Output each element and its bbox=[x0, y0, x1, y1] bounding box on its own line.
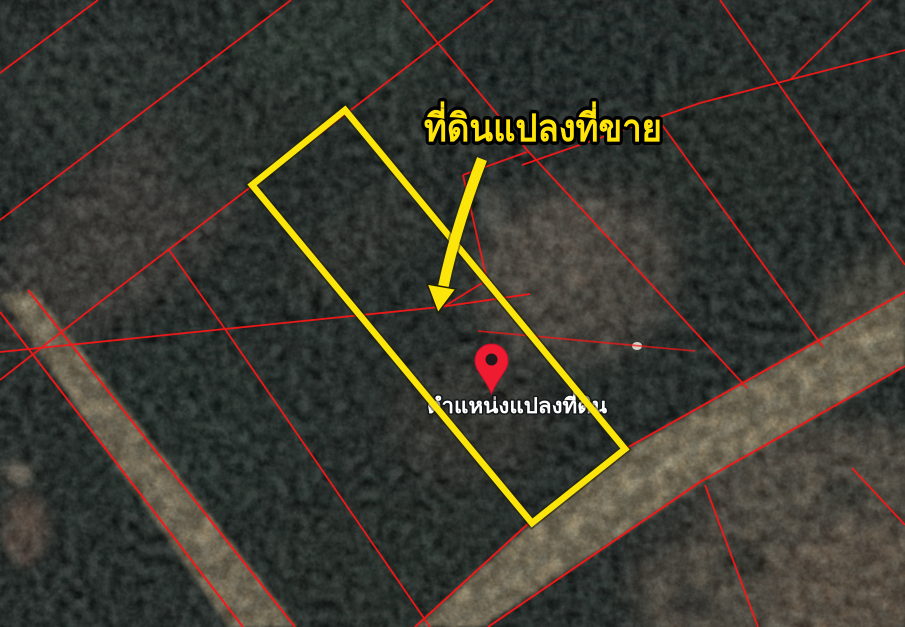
pin-shadow bbox=[484, 392, 506, 401]
noise-grain-overlay bbox=[0, 0, 905, 627]
satellite-map-image: ตำแหน่งแปลงที่ดิน ที่ดินแปลงที่ขาย bbox=[0, 0, 905, 627]
satellite-terrain bbox=[0, 0, 905, 627]
image-title: ที่ดินแปลงที่ขาย bbox=[424, 101, 662, 150]
pin-hole bbox=[486, 354, 498, 366]
map-canvas: ตำแหน่งแปลงที่ดิน ที่ดินแปลงที่ขาย bbox=[0, 0, 905, 627]
